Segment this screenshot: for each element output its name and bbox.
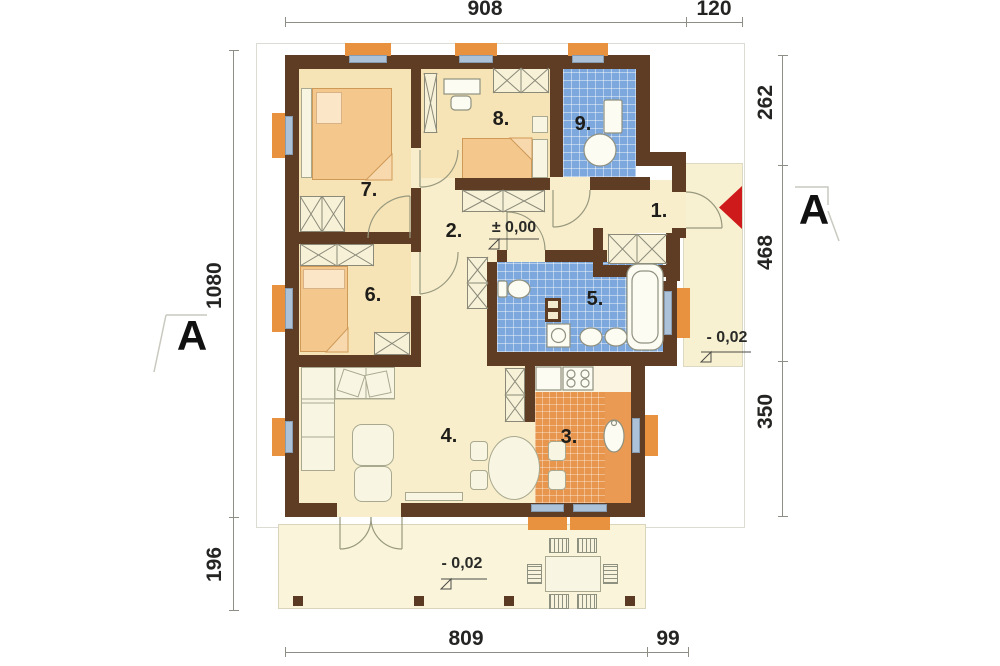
door-opening xyxy=(411,252,421,296)
window xyxy=(572,55,604,63)
room-label-2: 2. xyxy=(434,219,474,243)
wall-r6-bottom xyxy=(299,355,421,367)
wall-bath9-bottom xyxy=(590,177,650,190)
terrace-table xyxy=(545,556,601,592)
room-label-1: 1. xyxy=(639,199,679,223)
dim-top-120: 120 xyxy=(678,0,750,20)
window-sill xyxy=(272,285,285,332)
window xyxy=(531,504,564,512)
terrace-chair xyxy=(577,594,597,609)
window xyxy=(285,421,293,453)
terrace-chair xyxy=(527,564,542,584)
door-opening xyxy=(337,503,401,517)
terrace-chair xyxy=(549,538,569,553)
dining-table xyxy=(488,436,540,500)
sofa-left xyxy=(301,367,335,471)
wall-r6-right-a xyxy=(411,244,421,252)
dim-tick xyxy=(285,17,286,27)
window xyxy=(285,288,293,329)
dim-right-468: 468 xyxy=(753,224,779,280)
wardrobe-room6-side xyxy=(374,332,410,355)
window-sill xyxy=(570,517,610,530)
dim-right-350: 350 xyxy=(753,383,779,439)
wall-r7-bottom xyxy=(299,232,411,244)
terrace-post xyxy=(293,596,303,606)
wardrobe-hall xyxy=(462,190,545,212)
room-label-5: 5. xyxy=(575,287,615,311)
window-sill xyxy=(528,517,567,530)
terrace-post xyxy=(414,596,424,606)
dim-line-top xyxy=(285,22,743,23)
room-label-9: 9. xyxy=(563,112,603,136)
wall-bath9-right xyxy=(636,55,650,166)
dim-right-262: 262 xyxy=(753,74,779,130)
dim-tick xyxy=(778,165,788,166)
pillow-room7 xyxy=(316,92,342,124)
nightstand-room8 xyxy=(532,116,548,133)
dim-bottom-809: 809 xyxy=(426,628,506,650)
dim-bottom-99: 99 xyxy=(638,628,698,650)
dining-chair xyxy=(470,441,488,461)
kitchen-counter-top xyxy=(535,366,631,392)
level-terrace: - 0,02 xyxy=(430,554,494,574)
window-sill xyxy=(645,415,658,456)
bed7-side-rail xyxy=(301,88,312,178)
dining-chair xyxy=(470,470,488,490)
level-main: ± 0,00 xyxy=(478,217,550,239)
floor-plan-canvas: 1. 2. 3. 4. 5. 6. 7. 8. 9. ± 0,00 - 0,02… xyxy=(0,0,1000,666)
dim-tick xyxy=(229,50,239,51)
bed-room8 xyxy=(462,138,532,180)
dim-tick xyxy=(229,610,239,611)
window xyxy=(573,504,607,512)
tv-board xyxy=(405,492,463,501)
chimney-flue xyxy=(548,312,558,319)
wall-entry-top xyxy=(636,152,686,166)
dim-left-196: 196 xyxy=(202,521,228,607)
door-opening xyxy=(411,148,421,188)
pillow-room6 xyxy=(303,269,345,289)
wall-bath5-left xyxy=(487,262,497,352)
wall-bath5-kitchen xyxy=(487,352,631,366)
kitchen-counter-right xyxy=(605,392,631,503)
section-marker-right: A xyxy=(792,186,836,234)
wall-kitchen-left xyxy=(525,366,535,422)
terrace-post xyxy=(625,596,635,606)
dim-tick xyxy=(229,517,239,518)
window xyxy=(349,55,387,63)
dim-tick xyxy=(778,516,788,517)
terrace-chair xyxy=(549,594,569,609)
wardrobe-room7 xyxy=(300,196,345,232)
terrace-post xyxy=(504,596,514,606)
dim-tick xyxy=(778,55,788,56)
terrace-chair xyxy=(603,564,618,584)
room-label-8: 8. xyxy=(481,107,521,131)
wardrobe-room8-top xyxy=(493,68,549,93)
wall-bath9-left xyxy=(550,55,563,177)
wall-r7-r8 xyxy=(411,69,421,148)
door-opening xyxy=(563,177,590,190)
bed8-side-table xyxy=(532,139,548,178)
window-sill xyxy=(272,113,285,158)
wall-corridor-left xyxy=(411,188,421,244)
door-opening xyxy=(507,250,545,262)
armchair xyxy=(354,466,392,502)
window xyxy=(285,116,293,155)
room-label-7: 7. xyxy=(349,178,389,202)
wall-bottom-left xyxy=(285,503,337,517)
coffee-table xyxy=(352,424,394,466)
wall-bath5-top-b xyxy=(545,250,607,262)
chimney-flue xyxy=(548,301,558,308)
wall-entry-right-a xyxy=(672,166,686,192)
window xyxy=(459,55,493,63)
window xyxy=(664,291,672,335)
dim-line-left xyxy=(233,50,234,611)
wall-r6-right-b xyxy=(411,296,421,358)
wardrobe-room6-top xyxy=(300,244,374,266)
room-label-6: 6. xyxy=(353,283,393,307)
dining-chair xyxy=(548,470,566,490)
window-sill xyxy=(677,288,690,338)
wall-r8-bottom xyxy=(455,178,550,190)
terrace-chair xyxy=(577,538,597,553)
wall-bath5-top-a xyxy=(497,250,507,262)
entry-closet xyxy=(608,234,667,264)
room-label-4: 4. xyxy=(429,424,469,448)
level-porch: - 0,02 xyxy=(695,328,759,348)
pantry-cabinet xyxy=(505,368,525,422)
dim-line-bottom xyxy=(285,652,689,653)
window xyxy=(632,418,640,453)
window-sill xyxy=(272,418,285,456)
dim-tick xyxy=(778,361,788,362)
dim-left-1080: 1080 xyxy=(202,243,228,329)
dim-tick xyxy=(285,647,286,657)
dim-top-908: 908 xyxy=(445,0,525,20)
dim-line-right xyxy=(782,55,783,517)
room-label-3: 3. xyxy=(549,425,589,449)
wardrobe-room8-left xyxy=(424,73,437,133)
wall-bottom-right xyxy=(401,503,645,517)
closet-by-bath5 xyxy=(467,257,488,309)
wall-entry-closet-bottom xyxy=(597,265,680,277)
